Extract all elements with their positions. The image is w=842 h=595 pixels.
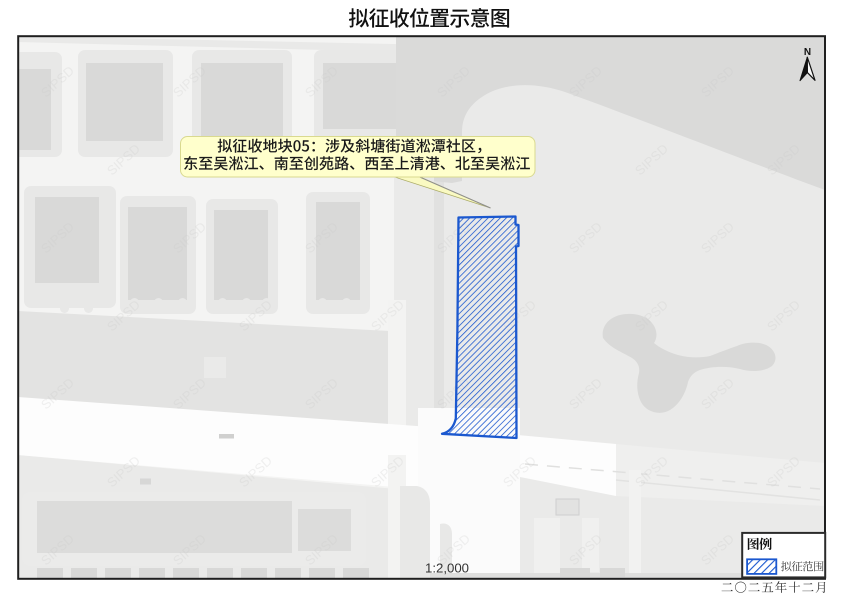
svg-text:SIPSD: SIPSD — [764, 0, 803, 22]
svg-text:SIPSD: SIPSD — [104, 0, 143, 22]
svg-text:SIPSD: SIPSD — [0, 141, 11, 178]
svg-text:SIPSD: SIPSD — [830, 375, 842, 412]
svg-text:1:2,000: 1:2,000 — [425, 560, 469, 575]
svg-text:SIPSD: SIPSD — [830, 63, 842, 100]
svg-text:SIPSD: SIPSD — [0, 297, 11, 334]
svg-text:SIPSD: SIPSD — [236, 0, 275, 22]
svg-text:SIPSD: SIPSD — [830, 531, 842, 568]
svg-text:SIPSD: SIPSD — [632, 0, 671, 22]
svg-text:SIPSD: SIPSD — [830, 219, 842, 256]
svg-text:SIPSD: SIPSD — [0, 453, 11, 490]
svg-text:SIPSD: SIPSD — [0, 0, 11, 22]
svg-text:N: N — [804, 47, 811, 58]
